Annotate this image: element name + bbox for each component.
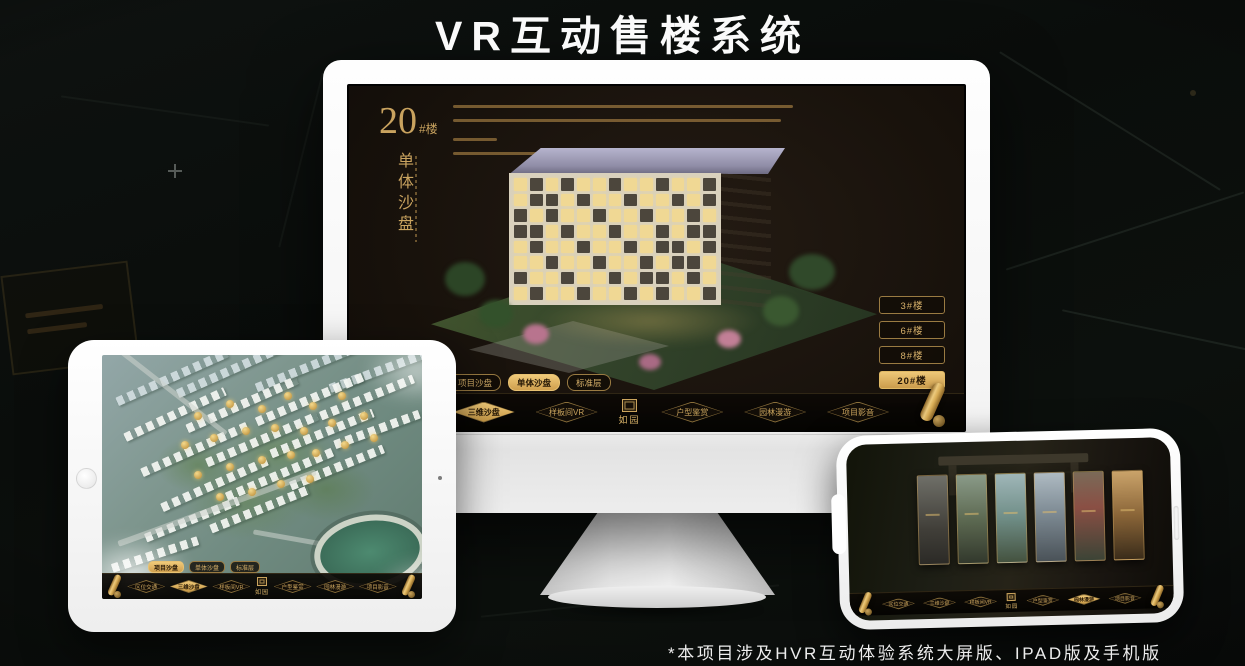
main-navbar: 区位交通三维沙盘样板间VR如园户型鉴赏园林漫游项目影音 [850, 585, 1174, 616]
gallery-card[interactable] [1034, 472, 1067, 563]
nav-item-label: 项目影音 [360, 581, 396, 592]
sub-tab[interactable]: 标准层 [567, 374, 611, 391]
nav-item-label: 园林漫游 [317, 581, 353, 592]
nav-item-label: 园林漫游 [1068, 594, 1099, 604]
nav-item[interactable]: 户型鉴赏 [274, 580, 312, 593]
nav-item[interactable]: 三维沙盘 [923, 597, 956, 609]
brand-name: 如园 [618, 413, 640, 426]
description-line [453, 119, 781, 122]
brand-seal-icon [622, 399, 637, 412]
nav-item[interactable]: 样板间VR [964, 596, 997, 608]
nav-item[interactable]: 园林漫游 [316, 580, 354, 593]
nav-item-label: 项目影音 [1109, 593, 1140, 603]
caption-text: *本项目涉及HVR互动体验系统大屏版、IPAD版及手机版 [668, 639, 1162, 664]
block-subtitle: 单体沙盘 [391, 152, 415, 236]
building-badge[interactable] [226, 400, 234, 408]
phone-notch [831, 494, 846, 554]
tablet-home-button [76, 468, 97, 489]
nav-item[interactable]: 项目影音 [359, 580, 397, 593]
nav-item[interactable]: 项目影音 [1108, 592, 1141, 604]
block-title: 20#楼 [379, 102, 438, 140]
building-badge[interactable] [194, 471, 202, 479]
scroll-ornament-icon[interactable] [1149, 584, 1166, 610]
floor-button[interactable]: 3#楼 [879, 296, 945, 314]
nav-item-label: 三维沙盘 [924, 598, 955, 608]
scroll-ornament-icon[interactable] [858, 591, 875, 617]
nav-item[interactable]: 样板间VR [212, 580, 250, 593]
nav-item-label: 样板间VR [965, 597, 996, 607]
page-title: VR互动售楼系统 [0, 2, 1245, 62]
block-subtitle-en-decoration [415, 156, 417, 242]
nav-item[interactable]: 项目影音 [827, 402, 889, 423]
brand-seal-icon [1007, 592, 1016, 600]
monitor-base [548, 586, 766, 608]
blossom-tree [523, 324, 549, 344]
nav-item[interactable]: 户型鉴赏 [1026, 594, 1059, 606]
building-badge[interactable] [287, 451, 295, 459]
nav-item-label: 户型鉴赏 [1027, 595, 1058, 605]
building-badge[interactable] [370, 434, 378, 442]
brand-logo[interactable]: 如园 [1005, 592, 1018, 609]
brand-logo[interactable]: 如园 [618, 399, 640, 426]
nav-item[interactable]: 园林漫游 [1067, 593, 1100, 605]
building-badge[interactable] [210, 434, 218, 442]
nav-item-label: 三维沙盘 [454, 403, 514, 422]
phone-mockup: 区位交通三维沙盘样板间VR如园户型鉴赏园林漫游项目影音 [836, 428, 1185, 630]
blossom-tree [639, 354, 661, 370]
nav-item[interactable]: 园林漫游 [744, 402, 806, 423]
sub-tab-group: 项目沙盘单体沙盘标准层 [449, 374, 611, 391]
scroll-ornament-icon[interactable] [107, 574, 123, 600]
page: VR互动售楼系统 20#楼 单体沙盘 [0, 0, 1245, 666]
nav-item-label: 户型鉴赏 [275, 581, 311, 592]
sub-tab[interactable]: 单体沙盘 [189, 561, 225, 573]
description-line [453, 138, 497, 141]
tablet-app-chrome: 项目沙盘单体沙盘标准层 区位交通三维沙盘样板间VR如园户型鉴赏园林漫游项目影音 [102, 573, 422, 599]
floor-button[interactable]: 8#楼 [879, 346, 945, 364]
gate-beam [938, 453, 1088, 466]
brand-name: 如园 [1005, 601, 1018, 609]
building-badge[interactable] [242, 427, 250, 435]
gallery-card[interactable] [956, 474, 989, 565]
tablet-screen: 项目沙盘单体沙盘标准层 区位交通三维沙盘样板间VR如园户型鉴赏园林漫游项目影音 [102, 355, 422, 599]
tree [789, 254, 835, 290]
gallery-card[interactable] [1073, 471, 1106, 562]
brand-seal-icon [257, 577, 267, 586]
tree [479, 300, 513, 328]
nav-item-label: 样板间VR [537, 403, 597, 422]
nav-item[interactable]: 区位交通 [127, 580, 165, 593]
nav-item[interactable]: 三维沙盘 [170, 580, 208, 593]
nav-item[interactable]: 三维沙盘 [453, 402, 515, 423]
sub-tab[interactable]: 项目沙盘 [148, 561, 184, 573]
nav-item-label: 区位交通 [883, 599, 914, 609]
sub-tab[interactable]: 单体沙盘 [508, 374, 560, 391]
gallery-card[interactable] [1112, 470, 1145, 561]
building-badge[interactable] [271, 424, 279, 432]
sub-tab[interactable]: 项目沙盘 [449, 374, 501, 391]
blossom-tree [717, 330, 741, 348]
block-number-suffix: #楼 [419, 122, 438, 136]
brand-logo[interactable]: 如园 [255, 577, 269, 596]
nav-item-label: 样板间VR [213, 581, 249, 592]
building-badge[interactable] [258, 405, 266, 413]
building-front-windows [509, 173, 721, 305]
panorama-gallery [917, 470, 1145, 565]
gallery-card[interactable] [995, 473, 1028, 564]
building-badge[interactable] [258, 456, 266, 464]
tablet-mockup: 项目沙盘单体沙盘标准层 区位交通三维沙盘样板间VR如园户型鉴赏园林漫游项目影音 [68, 340, 456, 632]
nav-item[interactable]: 样板间VR [536, 402, 598, 423]
brand-name: 如园 [255, 587, 269, 596]
phone-screen: 区位交通三维沙盘样板间VR如园户型鉴赏园林漫游项目影音 [846, 437, 1174, 621]
tree [763, 296, 799, 326]
floor-button-group: 3#楼6#楼8#楼20#楼 [879, 296, 945, 389]
building-badge[interactable] [194, 412, 202, 420]
nav-item-label: 园林漫游 [745, 403, 805, 422]
building-model [509, 148, 777, 316]
tree [445, 262, 485, 296]
nav-item[interactable]: 户型鉴赏 [661, 402, 723, 423]
building-side [721, 173, 771, 310]
main-navbar: 区位交通三维沙盘样板间VR如园户型鉴赏园林漫游项目影音 [102, 573, 422, 599]
building-roof [501, 148, 785, 174]
nav-item-label: 区位交通 [128, 581, 164, 592]
building-badge[interactable] [312, 449, 320, 457]
block-number: 20 [379, 100, 417, 142]
tablet-camera-icon [438, 476, 442, 480]
nav-item[interactable]: 区位交通 [882, 598, 915, 610]
nav-item-label: 户型鉴赏 [662, 403, 722, 422]
gallery-card[interactable] [917, 475, 950, 566]
building-badge[interactable] [300, 427, 308, 435]
phone-side-button [1173, 506, 1179, 540]
floor-button[interactable]: 6#楼 [879, 321, 945, 339]
scroll-ornament-icon[interactable] [916, 382, 950, 428]
sub-tab[interactable]: 标准层 [230, 561, 260, 573]
nav-item-label: 三维沙盘 [171, 581, 207, 592]
description-line [453, 105, 793, 108]
scroll-ornament-icon[interactable] [401, 574, 417, 600]
sub-tab-group: 项目沙盘单体沙盘标准层 [148, 561, 260, 573]
building-badge[interactable] [216, 493, 224, 501]
nav-item-label: 项目影音 [828, 403, 888, 422]
